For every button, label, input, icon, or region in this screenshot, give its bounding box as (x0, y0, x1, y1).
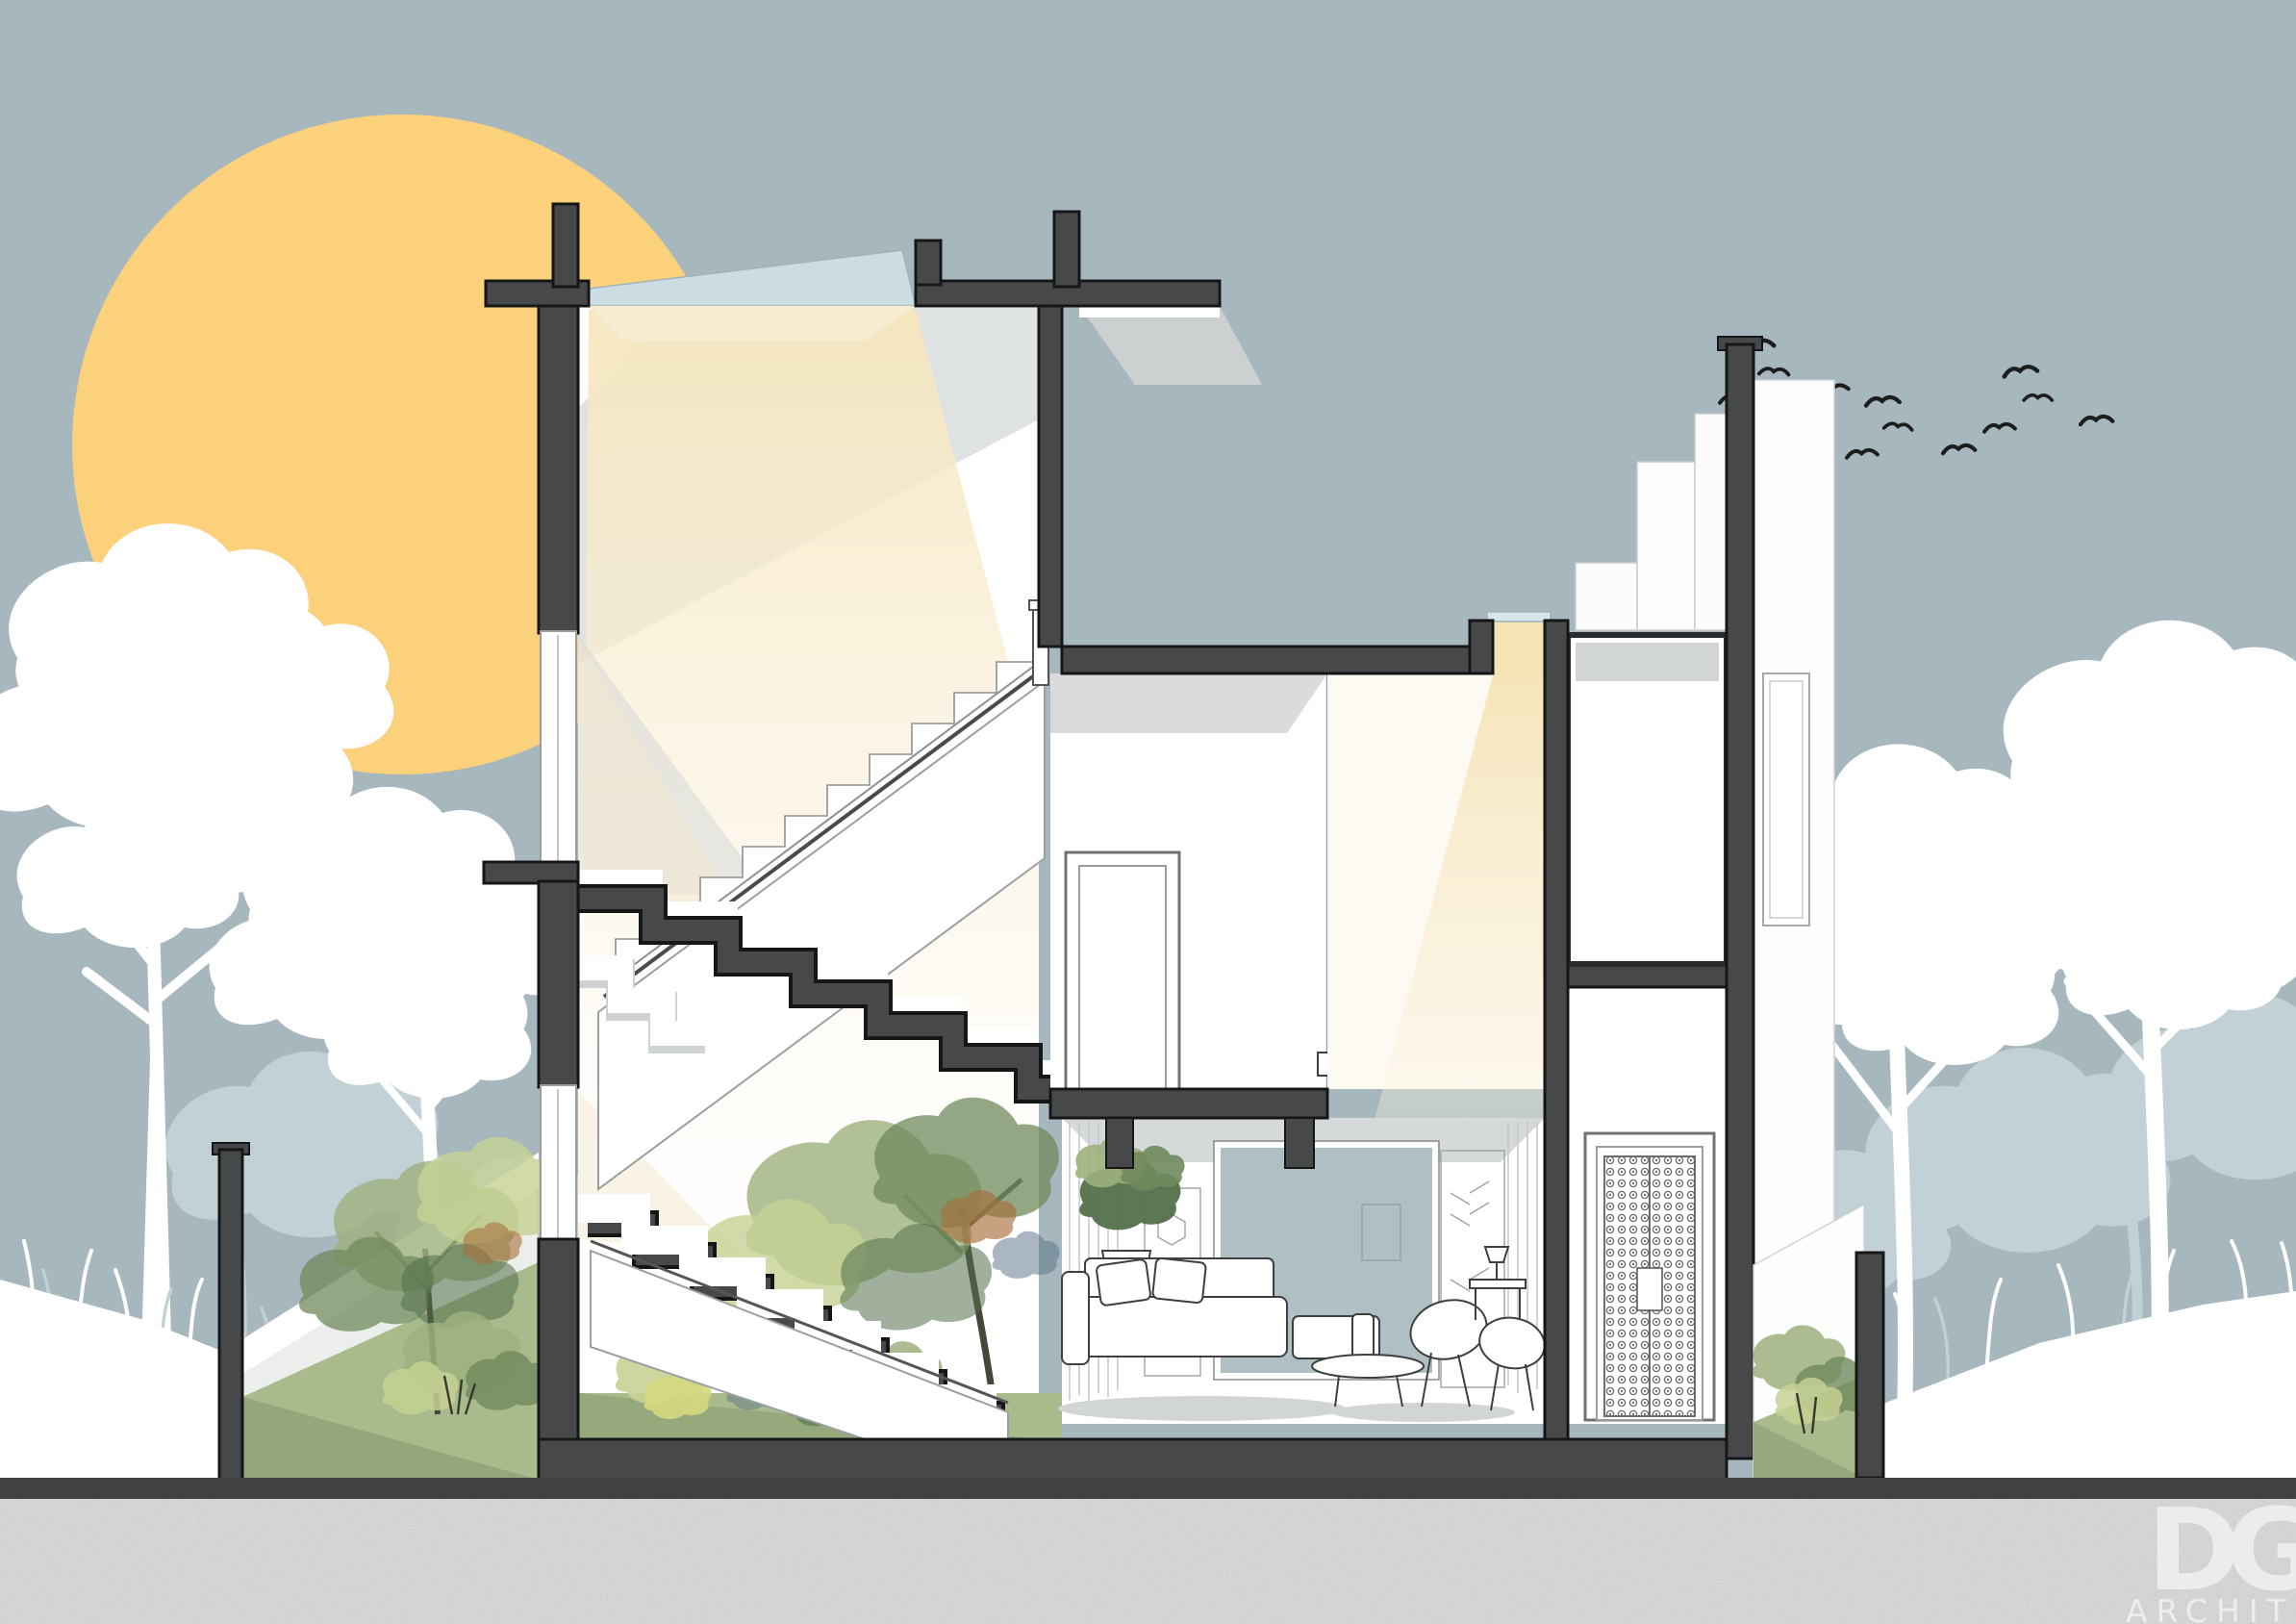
rear-roof-slab (1062, 647, 1470, 673)
ground-texture (0, 1499, 2296, 1624)
shaft-parapet (1470, 621, 1493, 673)
skylight-reveal (589, 306, 916, 341)
upper-rear-room (1568, 635, 1727, 964)
bedroom-ceiling-shade (1050, 673, 1327, 733)
foundation-slab (539, 1439, 1727, 1480)
entry-hall (1568, 962, 1727, 1424)
bedroom-floor-slab (1050, 1089, 1327, 1118)
parapet-post (553, 204, 578, 287)
furniture-shadow (1332, 1403, 1515, 1422)
parapet-post (1054, 212, 1079, 287)
dropped-beam-leg (1285, 1118, 1314, 1168)
lamp-shade (1485, 1247, 1508, 1262)
left-cut-wall (539, 306, 578, 633)
sofa-cushion (1152, 1257, 1206, 1303)
furniture-shadow (1058, 1396, 1347, 1421)
logo: DG ARCHITECTS (2126, 1484, 2296, 1624)
vase (1352, 1314, 1374, 1358)
left-cut-wall (539, 881, 578, 1087)
upper-room-soffit (1576, 643, 1719, 681)
rear-boundary-wall (1856, 1253, 1883, 1478)
illustration-canvas: DG ARCHITECTS (0, 0, 2296, 1624)
roof-volume (1576, 563, 1637, 630)
door-plate (1637, 1268, 1662, 1310)
bedroom-door-leaf (1079, 866, 1166, 1089)
light-shaft (1493, 621, 1545, 675)
side-table-top (1470, 1280, 1526, 1288)
sofa-cushion (1096, 1259, 1150, 1307)
living-entry-wall (1545, 621, 1568, 1459)
ground (0, 1478, 2296, 1624)
shaft-glass (1487, 612, 1551, 622)
dropped-beam-leg (1106, 1118, 1133, 1168)
tower-right-wall (1039, 306, 1062, 647)
sofa-arm (1062, 1272, 1089, 1364)
skylight-curb (916, 241, 941, 285)
eave-underside (1079, 306, 1220, 317)
logo-label: ARCHITECTS (2126, 1592, 2296, 1624)
right-cut-wall (1727, 344, 1754, 1459)
upper-room-cut (1568, 635, 1727, 964)
roof-volume (1695, 414, 1727, 630)
boundary-wall (219, 1150, 242, 1480)
roof-volume (1637, 462, 1695, 630)
table-top (1312, 1355, 1424, 1378)
